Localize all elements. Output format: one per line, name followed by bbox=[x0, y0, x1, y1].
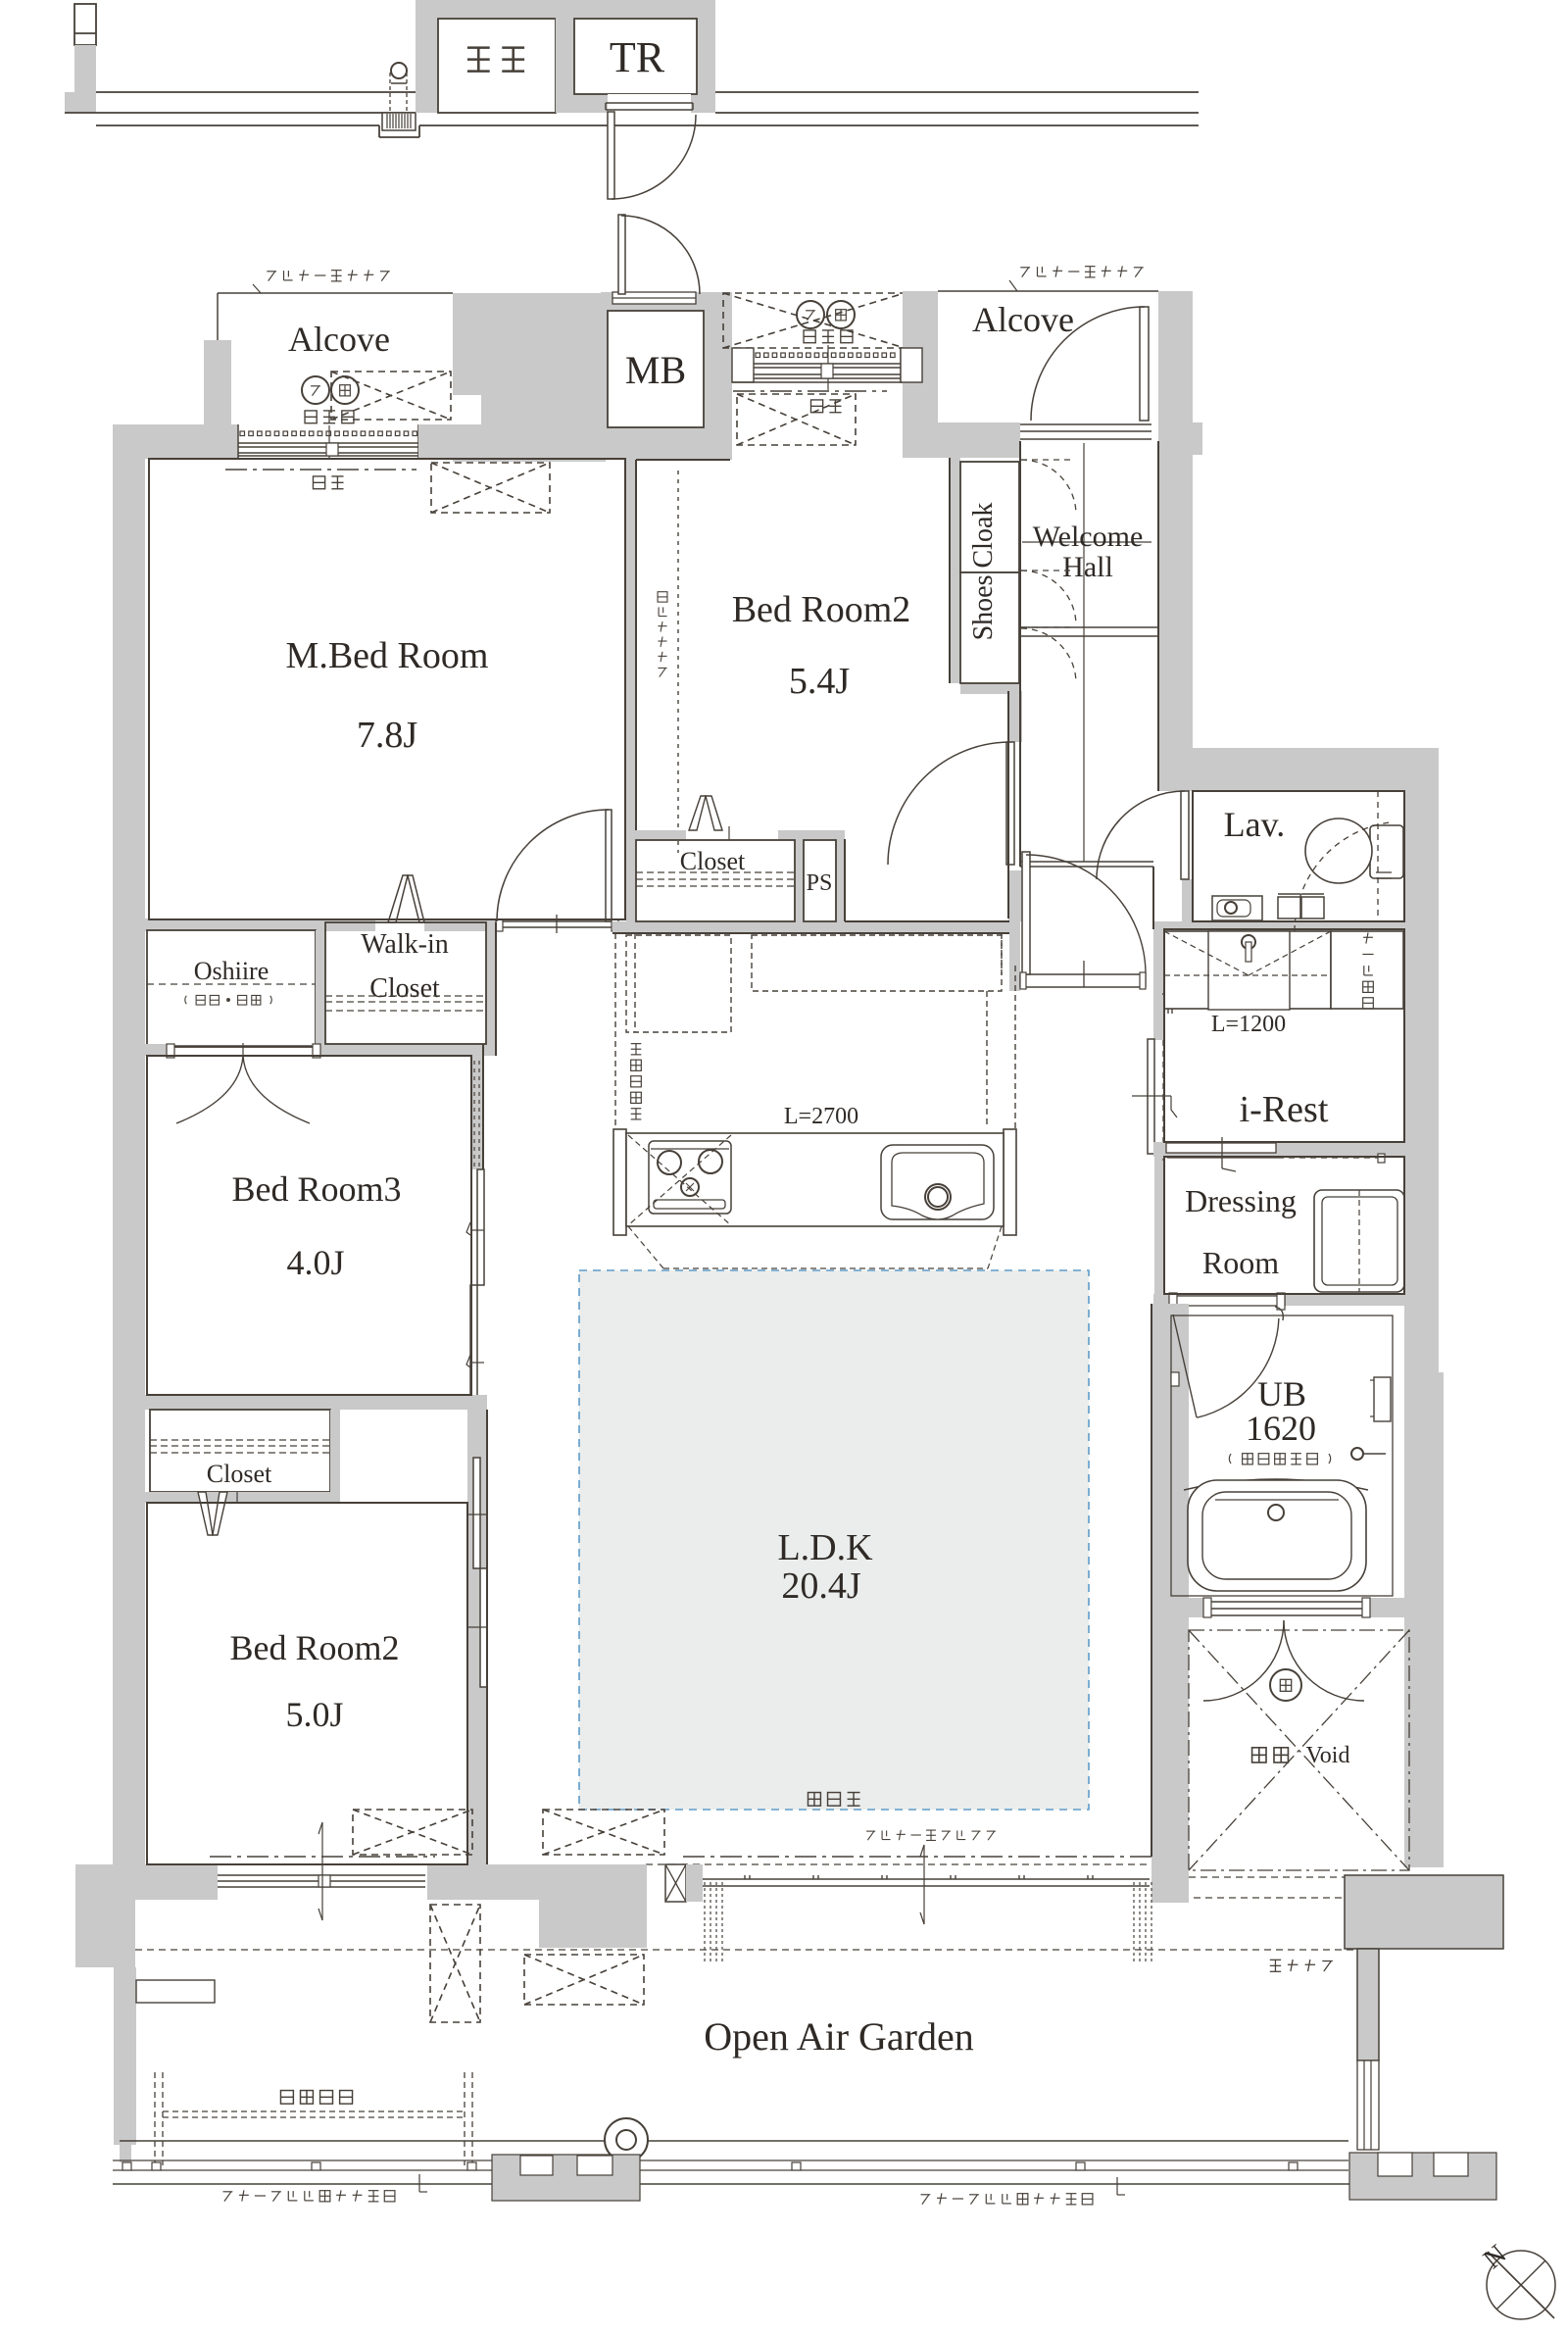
svg-text:UB: UB bbox=[1257, 1374, 1306, 1414]
svg-text:5.4J: 5.4J bbox=[789, 661, 850, 702]
svg-text:Room: Room bbox=[1202, 1245, 1279, 1280]
svg-text:Shoes Cloak: Shoes Cloak bbox=[968, 503, 999, 641]
svg-text:1620: 1620 bbox=[1246, 1409, 1316, 1448]
svg-text:Bed Room3: Bed Room3 bbox=[231, 1169, 401, 1209]
svg-text:L=2700: L=2700 bbox=[784, 1104, 858, 1129]
svg-text:L.D.K: L.D.K bbox=[777, 1527, 873, 1568]
svg-text:7.8J: 7.8J bbox=[357, 715, 417, 756]
svg-text:20.4J: 20.4J bbox=[781, 1565, 860, 1607]
svg-text:Open Air Garden: Open Air Garden bbox=[704, 2014, 973, 2059]
svg-text:5.0J: 5.0J bbox=[285, 1695, 343, 1734]
svg-text:Closet: Closet bbox=[680, 847, 746, 875]
svg-text:Walk-in: Walk-in bbox=[361, 929, 449, 960]
svg-text:L=1200: L=1200 bbox=[1211, 1012, 1286, 1037]
svg-text:M.Bed Room: M.Bed Room bbox=[286, 635, 489, 676]
svg-text:Bed Room2: Bed Room2 bbox=[229, 1628, 399, 1667]
svg-text:Lav.: Lav. bbox=[1224, 805, 1286, 844]
svg-text:Closet: Closet bbox=[369, 973, 440, 1004]
svg-text:Oshiire: Oshiire bbox=[194, 957, 269, 985]
svg-text:4.0J: 4.0J bbox=[286, 1243, 344, 1282]
svg-text:Bed Room2: Bed Room2 bbox=[732, 589, 911, 630]
svg-text:MB: MB bbox=[625, 348, 686, 392]
svg-text:Alcove: Alcove bbox=[288, 320, 390, 359]
svg-text:PS: PS bbox=[807, 870, 833, 896]
svg-text:Dressing: Dressing bbox=[1185, 1183, 1297, 1218]
svg-text:Alcove: Alcove bbox=[972, 300, 1074, 339]
svg-text:Closet: Closet bbox=[207, 1460, 272, 1488]
svg-text:i-Rest: i-Rest bbox=[1240, 1089, 1329, 1130]
svg-text:TR: TR bbox=[610, 33, 665, 81]
svg-text:Hall: Hall bbox=[1062, 551, 1113, 583]
svg-text:Welcome: Welcome bbox=[1033, 521, 1144, 553]
svg-text:Void: Void bbox=[1306, 1743, 1350, 1768]
